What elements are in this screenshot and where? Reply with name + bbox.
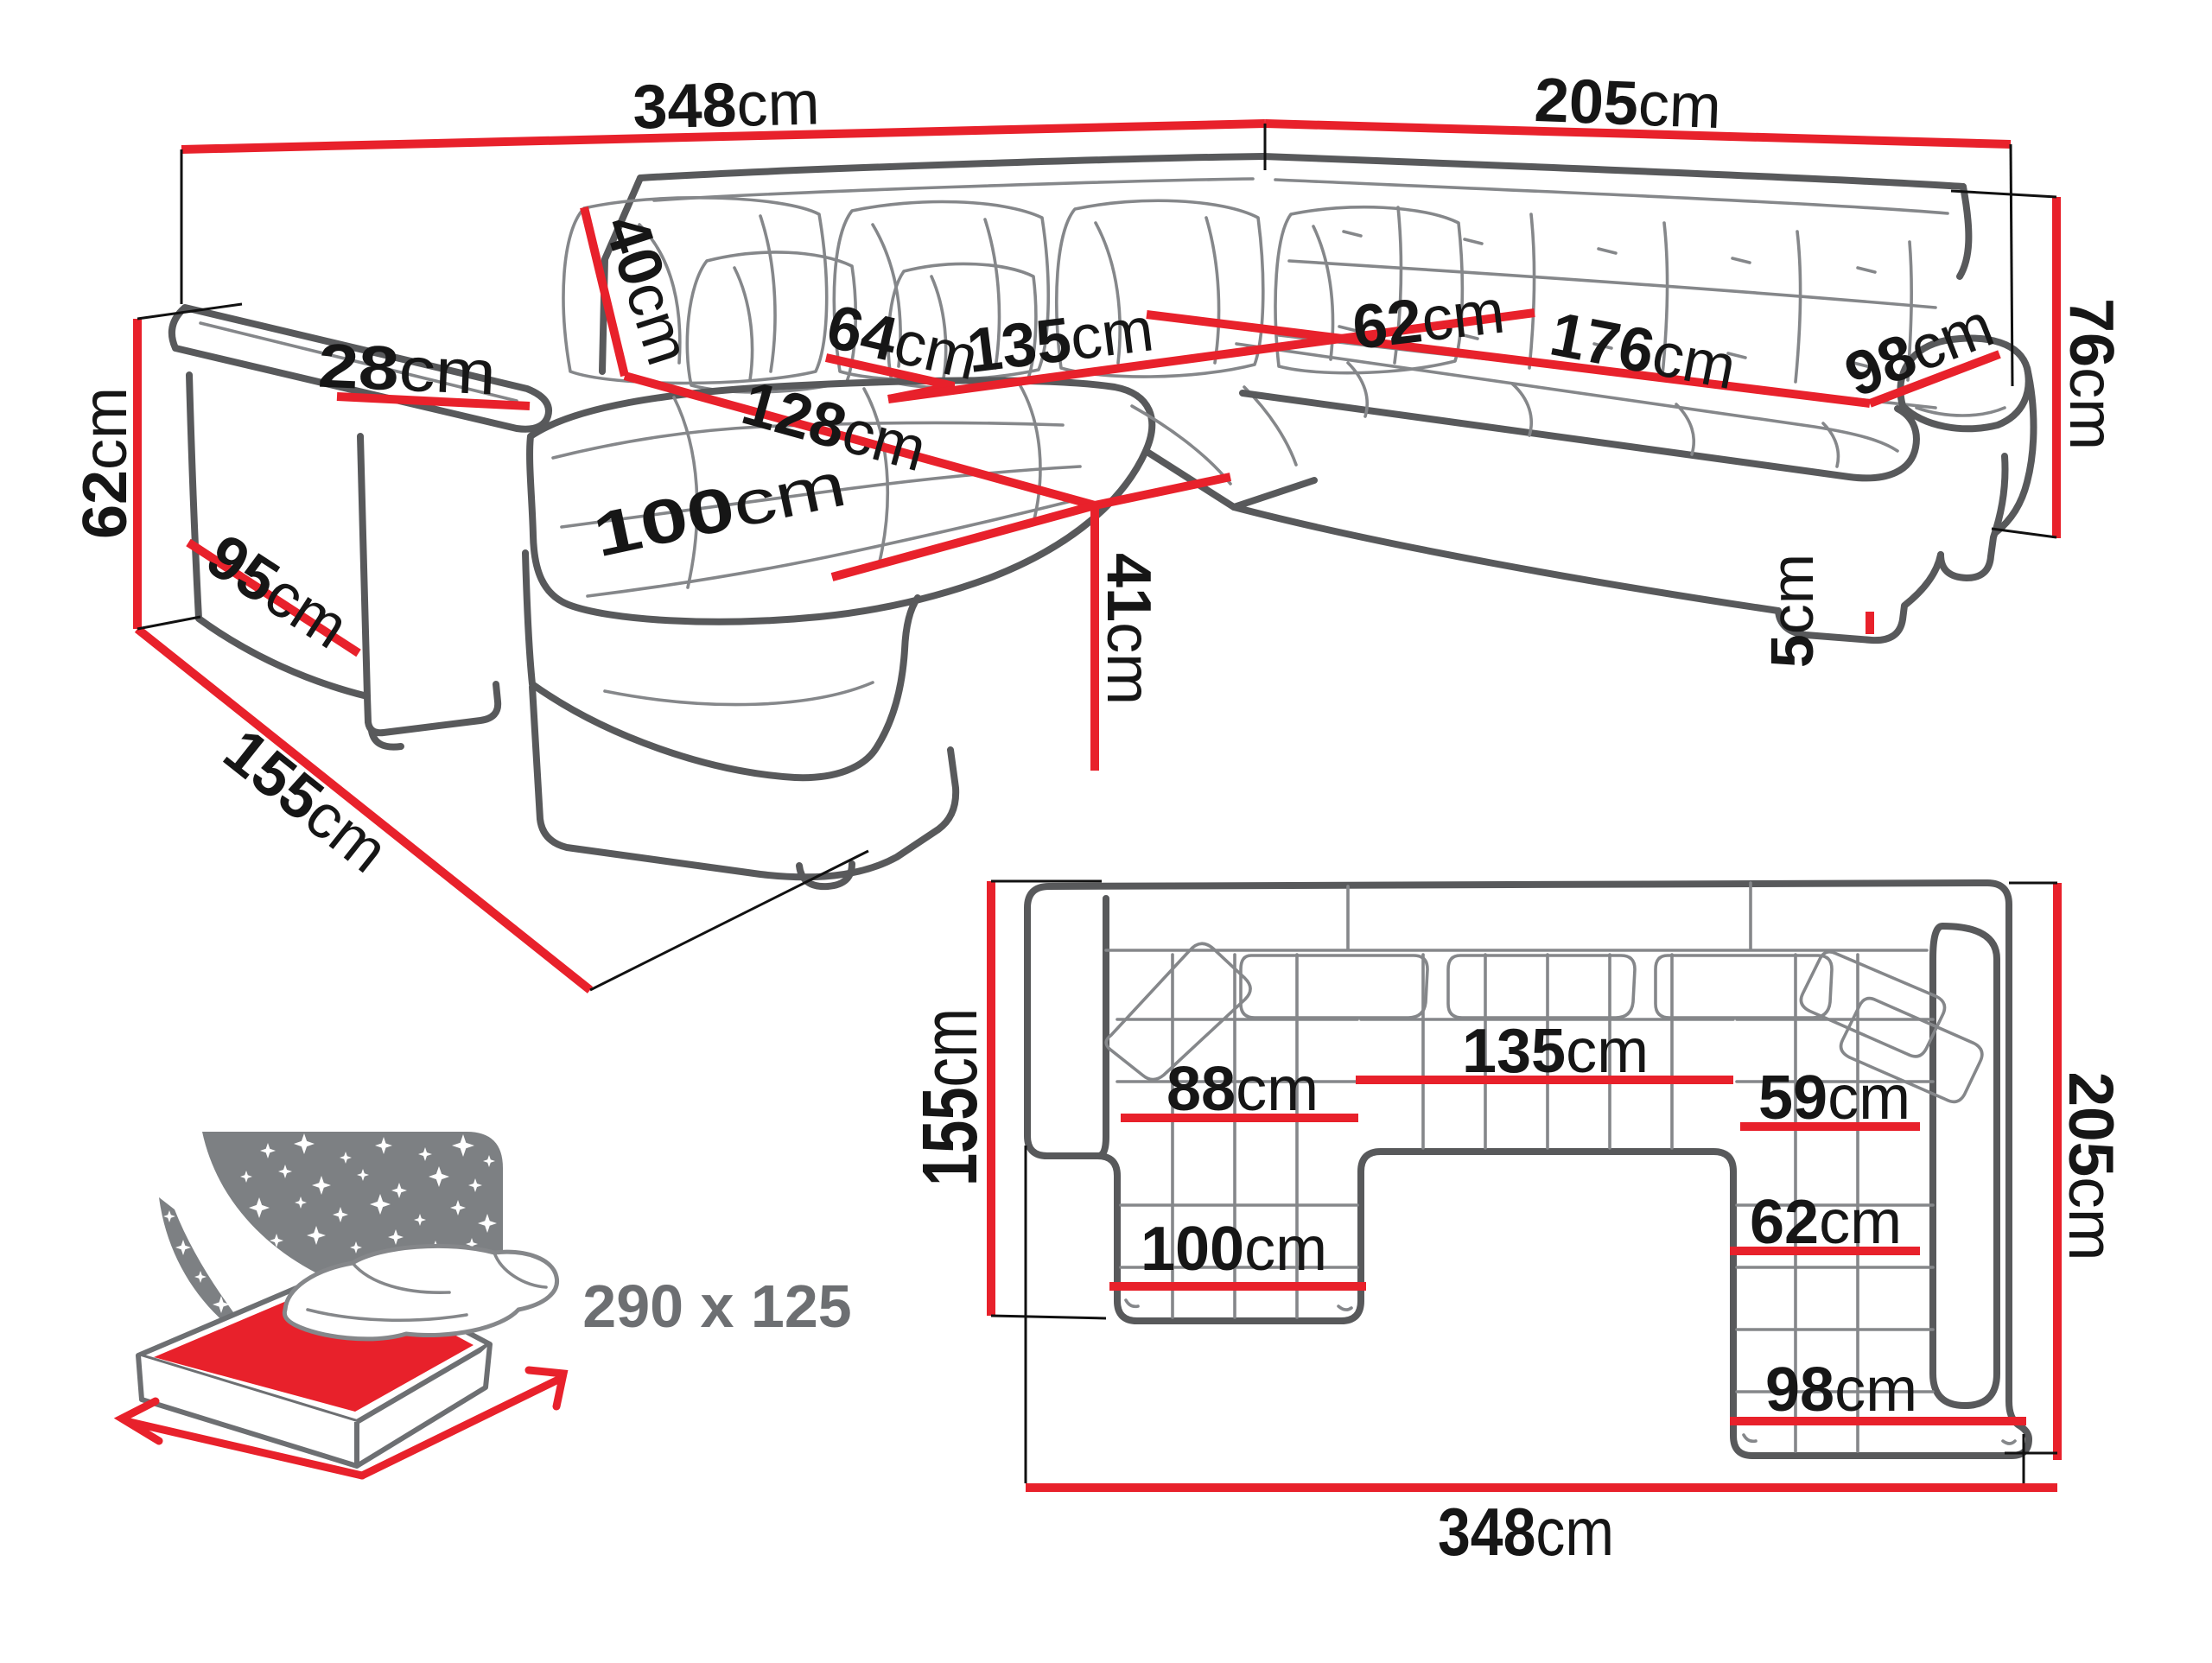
svg-text:205cm: 205cm [1533,66,1722,142]
svg-text:155cm: 155cm [907,1008,994,1186]
svg-text:98cm: 98cm [1765,1355,1917,1425]
svg-text:348cm: 348cm [632,68,820,142]
svg-text:28cm: 28cm [316,332,497,409]
svg-text:205cm: 205cm [2056,1071,2126,1260]
svg-text:290 x 125: 290 x 125 [582,1273,851,1340]
svg-text:5cm: 5cm [1758,554,1826,668]
svg-text:88cm: 88cm [1166,1055,1319,1124]
svg-text:100cm: 100cm [1141,1215,1327,1284]
svg-text:348cm: 348cm [1438,1494,1614,1570]
svg-text:62cm: 62cm [71,387,140,539]
svg-text:135cm: 135cm [1462,1017,1649,1086]
svg-text:41cm: 41cm [1094,553,1163,705]
svg-text:76cm: 76cm [2056,298,2126,450]
svg-text:59cm: 59cm [1758,1063,1910,1133]
svg-text:62cm: 62cm [1750,1188,1902,1257]
